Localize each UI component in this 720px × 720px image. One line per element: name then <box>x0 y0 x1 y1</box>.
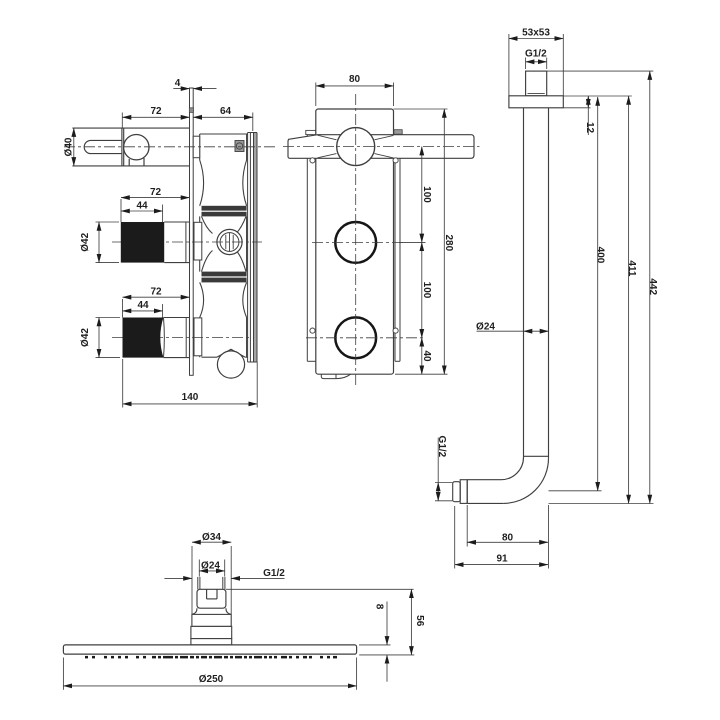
svg-text:44: 44 <box>136 201 148 212</box>
svg-text:140: 140 <box>182 392 199 403</box>
svg-text:53x53: 53x53 <box>522 28 550 39</box>
svg-text:100: 100 <box>421 186 432 203</box>
svg-text:Ø40: Ø40 <box>64 137 75 156</box>
svg-text:Ø24: Ø24 <box>476 322 495 333</box>
svg-text:Ø250: Ø250 <box>199 674 224 685</box>
svg-text:56: 56 <box>414 615 425 627</box>
svg-text:Ø42: Ø42 <box>80 232 91 251</box>
svg-text:4: 4 <box>175 78 181 89</box>
svg-text:400: 400 <box>595 247 606 264</box>
svg-text:72: 72 <box>150 287 162 298</box>
svg-text:72: 72 <box>150 106 162 117</box>
svg-text:G1/2: G1/2 <box>525 48 547 59</box>
svg-text:Ø24: Ø24 <box>201 560 220 571</box>
svg-text:44: 44 <box>137 300 149 311</box>
svg-text:G1/2: G1/2 <box>263 568 285 579</box>
svg-text:12: 12 <box>584 122 595 134</box>
svg-text:442: 442 <box>647 278 658 295</box>
svg-text:Ø42: Ø42 <box>80 328 91 347</box>
svg-text:72: 72 <box>150 187 162 198</box>
svg-text:100: 100 <box>421 282 432 299</box>
svg-text:Ø34: Ø34 <box>202 532 221 543</box>
svg-text:91: 91 <box>496 554 508 565</box>
svg-text:64: 64 <box>220 106 232 117</box>
svg-text:G1/2: G1/2 <box>436 436 447 458</box>
svg-text:8: 8 <box>374 604 385 610</box>
svg-text:80: 80 <box>349 74 361 85</box>
svg-text:411: 411 <box>626 260 637 277</box>
svg-text:80: 80 <box>502 532 514 543</box>
svg-text:40: 40 <box>421 350 432 362</box>
svg-text:280: 280 <box>443 234 454 251</box>
